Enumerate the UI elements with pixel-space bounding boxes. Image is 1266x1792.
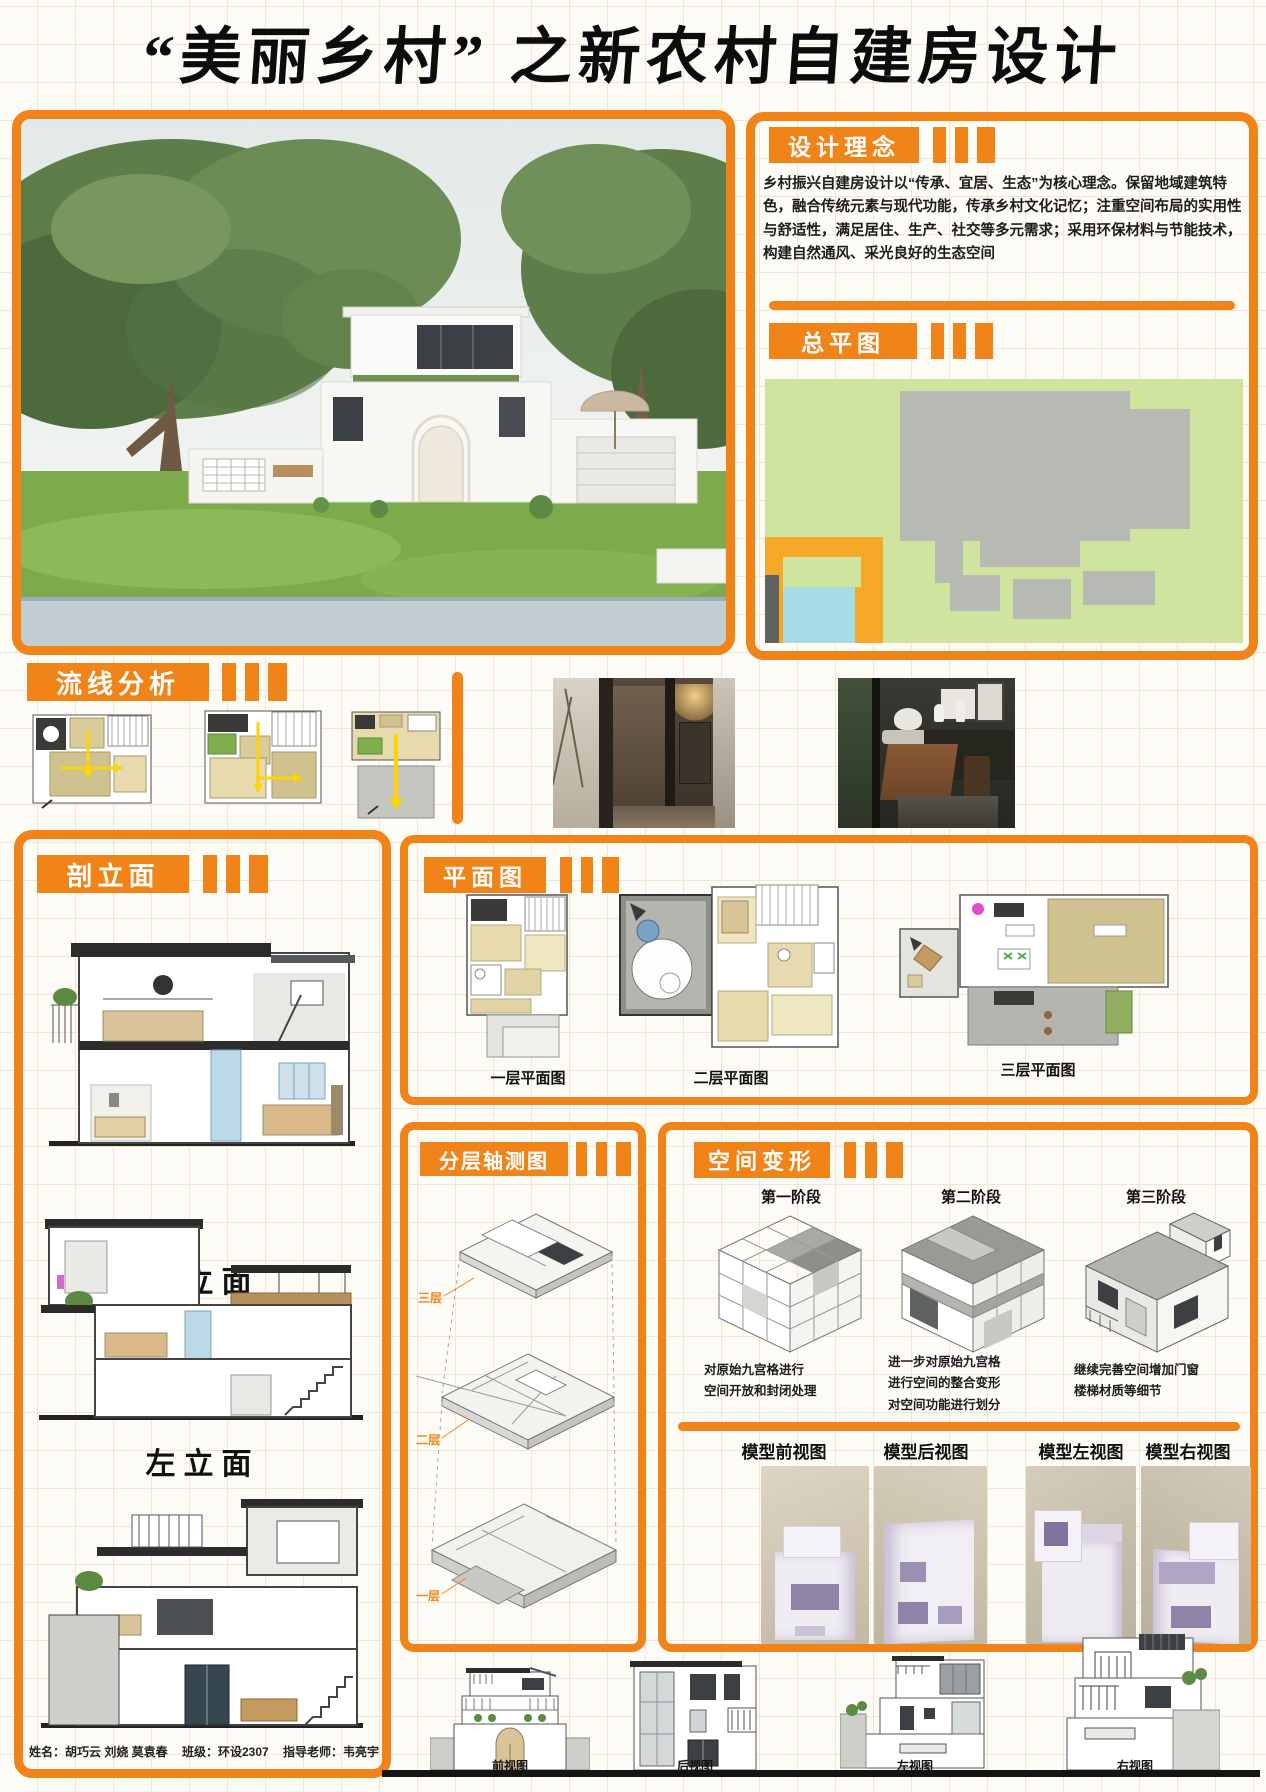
- axon-tag-3f: 三层: [418, 1291, 442, 1305]
- section-divider: [769, 301, 1235, 310]
- circulation-plan-2: [202, 708, 340, 816]
- site-plan-drawing: [765, 379, 1243, 643]
- model-back-label: 模型后视图: [866, 1438, 986, 1463]
- elevation-front-label: 前视图: [455, 1757, 565, 1774]
- model-photo-back: [874, 1466, 987, 1644]
- axonometric-drawing: 三层 二层 一层: [416, 1186, 632, 1638]
- site-plan-heading: 总平图: [769, 323, 917, 359]
- pool: [783, 587, 855, 643]
- hero-render-frame: [12, 110, 735, 655]
- floor-plan-2-label: 二层平面图: [646, 1067, 816, 1088]
- left-section-label: 左立面: [23, 1439, 382, 1483]
- header-accent-bars: [933, 127, 995, 163]
- header-accent-bars: [560, 857, 619, 893]
- interior-photo-dining: [838, 678, 1015, 828]
- building-mass: [1013, 579, 1071, 619]
- model-photo-right: [1141, 1466, 1251, 1644]
- model-photo-front: [761, 1466, 869, 1644]
- header-accent-bars: [931, 323, 993, 359]
- model-photo-left: [1026, 1466, 1136, 1644]
- header-accent-bars: [203, 855, 268, 893]
- stage-1-desc: 对原始九宫格进行 空间开放和封闭处理: [704, 1360, 869, 1403]
- courtyard-lawn: [783, 557, 861, 587]
- building-mass: [980, 541, 1080, 567]
- concept-siteplan-panel: 设计理念 乡村振兴自建房设计以“传承、宜居、生态”为核心理念。保留地域建筑特色，…: [746, 112, 1258, 660]
- floor-plans-heading: 平面图: [424, 857, 546, 893]
- model-right-label: 模型右视图: [1128, 1438, 1248, 1463]
- hero-render-image: [21, 119, 726, 646]
- credits-line: 姓名：胡巧云 刘娆 莫袁春 班级：环设2307 指导老师：韦亮宇: [29, 1743, 379, 1760]
- building-mass: [1130, 409, 1190, 529]
- circulation-heading: 流线分析: [27, 663, 209, 701]
- stage-3-label: 第三阶段: [1086, 1186, 1226, 1207]
- page-title: “美丽乡村” 之新农村自建房设计: [0, 6, 1266, 96]
- circulation-plan-3: [350, 710, 445, 822]
- space-transform-heading: 空间变形: [694, 1142, 830, 1178]
- entry-block: [765, 575, 779, 643]
- axonometric-panel: 分层轴测图: [400, 1122, 646, 1652]
- section-elevation-panel: 剖立面: [14, 830, 391, 1778]
- section-elevation-heading: 剖立面: [37, 855, 189, 893]
- elevation-right: [1055, 1632, 1220, 1770]
- stage-3-desc: 继续完善空间增加门窗 楼梯材质等细节: [1074, 1360, 1254, 1403]
- design-concept-body: 乡村振兴自建房设计以“传承、宜居、生态”为核心理念。保留地域建筑特色，融合传统元…: [763, 173, 1249, 267]
- stage-1-label: 第一阶段: [721, 1186, 861, 1207]
- stage-3-diagram: [1078, 1210, 1236, 1358]
- elevation-right-label: 右视图: [1080, 1757, 1190, 1774]
- floor-plan-3-label: 三层平面图: [953, 1059, 1123, 1080]
- section-divider: [678, 1422, 1240, 1431]
- interior-photo-hallway: [553, 678, 735, 828]
- stage-2-label: 第二阶段: [901, 1186, 1041, 1207]
- vertical-divider: [452, 672, 463, 824]
- stage-2-desc: 进一步对原始九宫格 进行空间的整合变形 对空间功能进行划分: [888, 1352, 1058, 1416]
- design-concept-heading: 设计理念: [769, 127, 919, 163]
- elevation-left: [840, 1652, 990, 1770]
- floor-plan-1-label: 一层平面图: [443, 1067, 613, 1088]
- axon-tag-2f: 二层: [416, 1433, 440, 1447]
- elevation-back-label: 后视图: [640, 1757, 750, 1774]
- elevation-back: [620, 1658, 770, 1770]
- section-drawing-front: [43, 935, 361, 1153]
- stage-2-diagram: [894, 1210, 1052, 1358]
- elevation-left-label: 左视图: [860, 1757, 970, 1774]
- floor-plan-2: [618, 883, 843, 1069]
- credit-names: 姓名：胡巧云 刘娆 莫袁春: [29, 1743, 168, 1760]
- elevation-front: [430, 1666, 590, 1770]
- section-drawing-left: [35, 1215, 369, 1427]
- axonometric-heading: 分层轴测图: [420, 1142, 568, 1176]
- model-front-label: 模型前视图: [724, 1438, 844, 1463]
- poster-page: “美丽乡村” 之新农村自建房设计: [0, 0, 1266, 1792]
- circulation-plan-1: [30, 712, 170, 817]
- credit-teacher: 指导老师：韦亮宇: [283, 1743, 379, 1760]
- credit-class: 班级：环设2307: [182, 1743, 269, 1760]
- model-left-label: 模型左视图: [1021, 1438, 1141, 1463]
- header-accent-bars: [222, 663, 287, 701]
- building-mass: [950, 575, 1000, 611]
- floor-plans-panel: 平面图 一层平面图: [400, 835, 1258, 1105]
- space-transform-panel: 空间变形 第一阶段 第二阶段 第三阶段: [658, 1122, 1258, 1652]
- section-drawing-3: [37, 1495, 367, 1735]
- stage-1-diagram: [711, 1210, 869, 1358]
- axon-tag-1f: 一层: [416, 1589, 440, 1603]
- header-accent-bars: [576, 1142, 631, 1176]
- building-mass: [1083, 571, 1155, 605]
- floor-plan-1: [463, 891, 588, 1063]
- building-mass: [900, 391, 1130, 541]
- header-accent-bars: [844, 1142, 903, 1178]
- floor-plan-3: [898, 887, 1178, 1049]
